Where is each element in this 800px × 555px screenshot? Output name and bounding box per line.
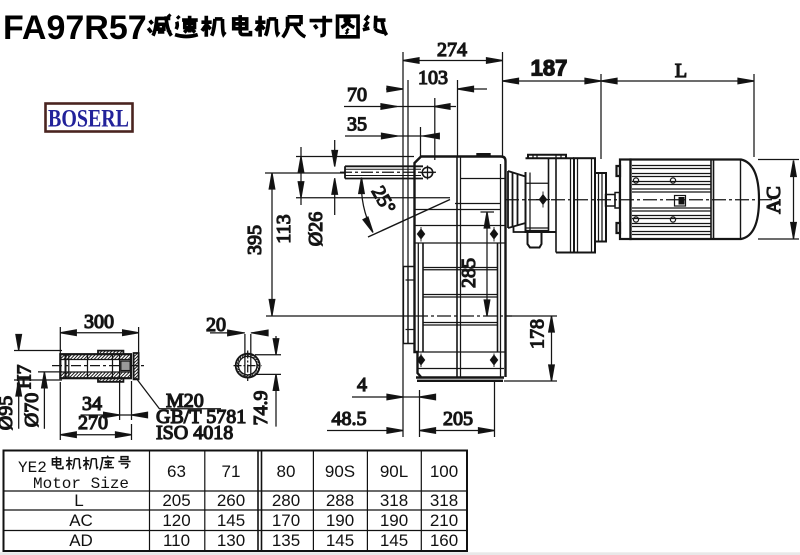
svg-text:25°: 25° bbox=[367, 182, 400, 217]
svg-text:63: 63 bbox=[167, 462, 186, 481]
svg-text:90S: 90S bbox=[325, 462, 355, 481]
svg-text:35: 35 bbox=[347, 114, 367, 136]
svg-text:190: 190 bbox=[326, 511, 354, 530]
svg-text:80: 80 bbox=[277, 462, 296, 481]
svg-text:4: 4 bbox=[357, 374, 367, 396]
svg-text:Ø26: Ø26 bbox=[305, 212, 327, 246]
svg-text:395: 395 bbox=[244, 225, 266, 255]
svg-text:318: 318 bbox=[430, 491, 458, 510]
svg-text:ISO 4018: ISO 4018 bbox=[156, 422, 233, 444]
svg-text:70: 70 bbox=[347, 84, 367, 106]
svg-text:Ø70: Ø70 bbox=[21, 393, 43, 427]
svg-text:318: 318 bbox=[380, 491, 408, 510]
svg-text:100: 100 bbox=[430, 462, 458, 481]
svg-text:300: 300 bbox=[84, 311, 114, 333]
svg-text:190: 190 bbox=[380, 511, 408, 530]
svg-text:210: 210 bbox=[430, 511, 458, 530]
svg-text:178: 178 bbox=[527, 319, 549, 349]
svg-text:145: 145 bbox=[217, 511, 245, 530]
svg-text:205: 205 bbox=[162, 491, 190, 510]
svg-text:Ø95: Ø95 bbox=[0, 396, 17, 430]
svg-text:205: 205 bbox=[443, 408, 473, 430]
svg-text:260: 260 bbox=[217, 491, 245, 510]
svg-text:BOSERL: BOSERL bbox=[48, 106, 129, 133]
svg-text:103: 103 bbox=[418, 67, 448, 89]
svg-text:160: 160 bbox=[430, 531, 458, 550]
svg-text:FA97R57: FA97R57 bbox=[3, 9, 147, 47]
svg-text:71: 71 bbox=[222, 462, 241, 481]
svg-text:AD: AD bbox=[69, 531, 93, 550]
svg-text:288: 288 bbox=[326, 491, 354, 510]
svg-text:113: 113 bbox=[273, 214, 295, 243]
svg-text:130: 130 bbox=[217, 531, 245, 550]
svg-text:135: 135 bbox=[272, 531, 300, 550]
svg-text:48.5: 48.5 bbox=[332, 408, 367, 430]
svg-text:274: 274 bbox=[437, 39, 467, 61]
svg-text:AC: AC bbox=[763, 186, 785, 214]
svg-text:145: 145 bbox=[380, 531, 408, 550]
svg-text:L: L bbox=[675, 60, 687, 82]
svg-text:280: 280 bbox=[272, 491, 300, 510]
svg-text:H7: H7 bbox=[14, 365, 36, 389]
svg-text:120: 120 bbox=[162, 511, 190, 530]
svg-text:74.9: 74.9 bbox=[250, 391, 272, 426]
svg-text:AC: AC bbox=[69, 511, 93, 530]
svg-text:270: 270 bbox=[78, 412, 108, 434]
svg-text:187: 187 bbox=[531, 56, 568, 81]
svg-text:170: 170 bbox=[272, 511, 300, 530]
svg-text:90L: 90L bbox=[380, 462, 408, 481]
svg-text:145: 145 bbox=[326, 531, 354, 550]
svg-text:285: 285 bbox=[458, 258, 480, 288]
svg-text:110: 110 bbox=[163, 531, 190, 550]
svg-text:L: L bbox=[74, 491, 83, 510]
